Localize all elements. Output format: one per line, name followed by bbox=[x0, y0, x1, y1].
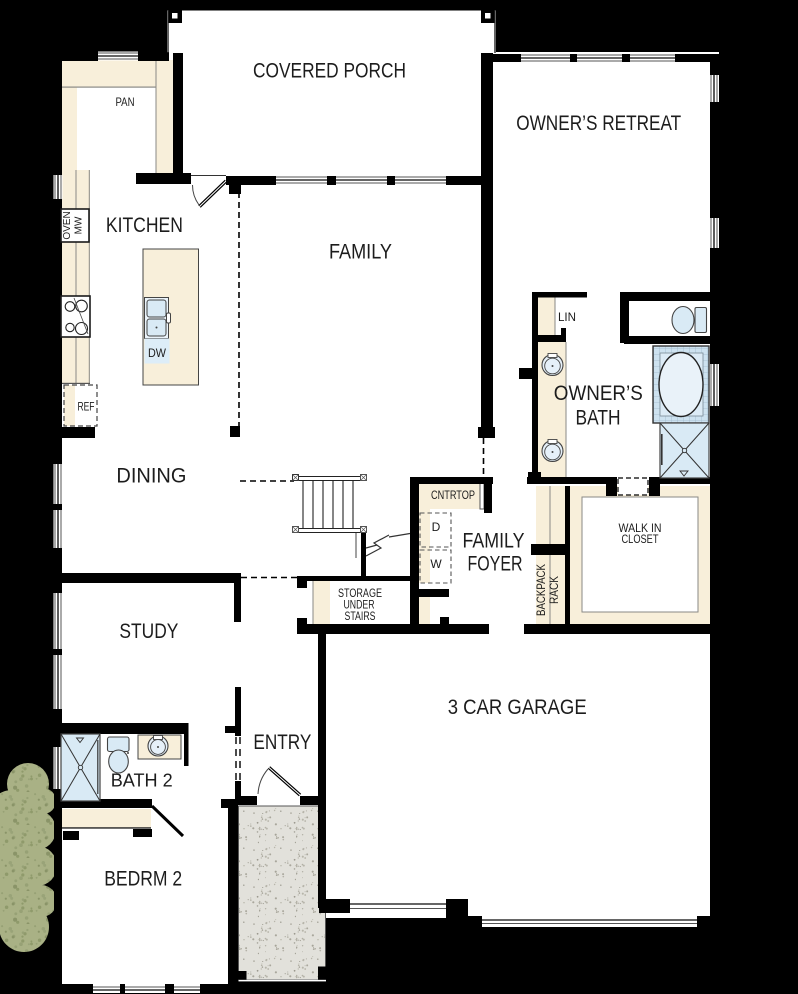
svg-text:BATH 2: BATH 2 bbox=[111, 769, 173, 790]
svg-text:BEDRM 2: BEDRM 2 bbox=[104, 868, 182, 891]
svg-text:DINING: DINING bbox=[116, 465, 186, 488]
svg-text:MW: MW bbox=[74, 216, 85, 234]
svg-text:LIN: LIN bbox=[558, 310, 576, 324]
svg-text:KITCHEN: KITCHEN bbox=[106, 214, 183, 237]
svg-text:BACKPACK: BACKPACK bbox=[534, 564, 548, 616]
svg-text:OWNER’S RETREAT: OWNER’S RETREAT bbox=[516, 112, 681, 135]
svg-text:W: W bbox=[430, 557, 442, 571]
svg-text:CNTRTOP: CNTRTOP bbox=[431, 488, 475, 502]
svg-text:COVERED PORCH: COVERED PORCH bbox=[253, 60, 406, 83]
svg-text:RACK: RACK bbox=[547, 576, 561, 604]
svg-text:CLOSET: CLOSET bbox=[622, 532, 660, 546]
svg-text:OVEN: OVEN bbox=[62, 211, 73, 239]
svg-text:STUDY: STUDY bbox=[119, 620, 178, 643]
svg-text:REF: REF bbox=[78, 400, 95, 414]
svg-text:3 CAR GARAGE: 3 CAR GARAGE bbox=[448, 696, 587, 719]
svg-text:DW: DW bbox=[148, 346, 167, 360]
svg-text:D: D bbox=[432, 520, 441, 534]
svg-text:PAN: PAN bbox=[116, 95, 135, 109]
svg-text:OWNER’S: OWNER’S bbox=[554, 382, 643, 405]
svg-text:FOYER: FOYER bbox=[468, 552, 523, 575]
svg-text:ENTRY: ENTRY bbox=[253, 731, 311, 754]
svg-text:BATH: BATH bbox=[576, 407, 621, 430]
svg-text:FAMILY: FAMILY bbox=[463, 530, 525, 553]
svg-text:FAMILY: FAMILY bbox=[329, 241, 392, 264]
svg-text:STAIRS: STAIRS bbox=[345, 609, 376, 623]
